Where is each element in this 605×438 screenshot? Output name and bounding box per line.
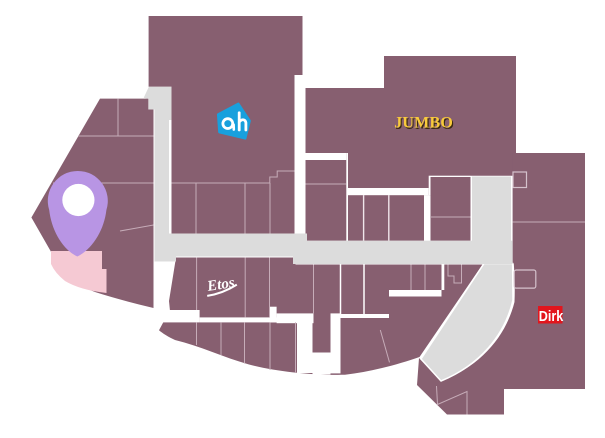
svg-text:JUMBO: JUMBO — [394, 115, 453, 132]
svg-text:Dirk: Dirk — [539, 308, 564, 324]
